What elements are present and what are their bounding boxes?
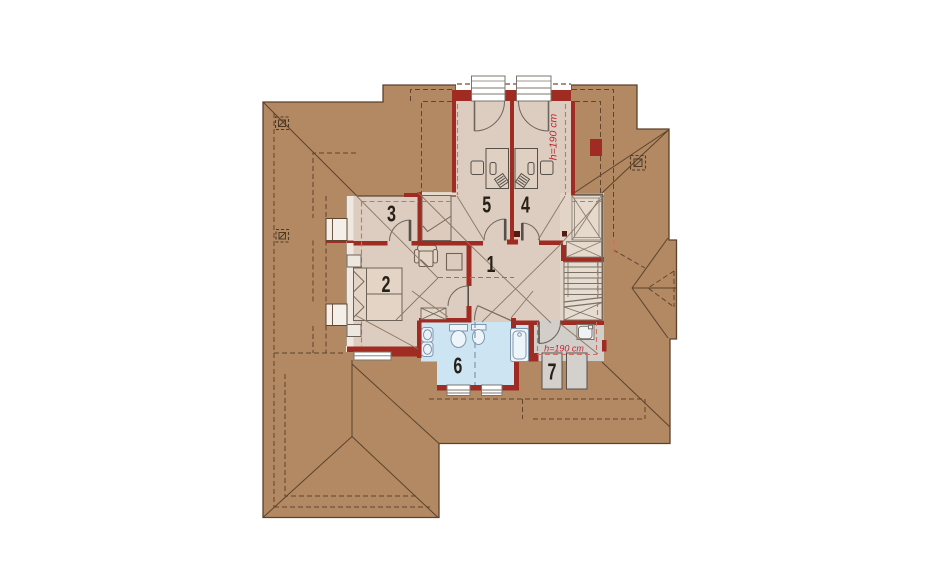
svg-text:3: 3 <box>387 202 396 227</box>
svg-text:1: 1 <box>487 252 496 277</box>
svg-text:5: 5 <box>482 193 491 218</box>
svg-text:h=190 cm: h=190 cm <box>548 114 560 161</box>
svg-text:6: 6 <box>453 354 462 379</box>
svg-text:4: 4 <box>521 193 530 218</box>
svg-text:2: 2 <box>382 272 391 297</box>
svg-text:7: 7 <box>548 360 557 385</box>
svg-text:h=190 cm: h=190 cm <box>544 344 584 354</box>
